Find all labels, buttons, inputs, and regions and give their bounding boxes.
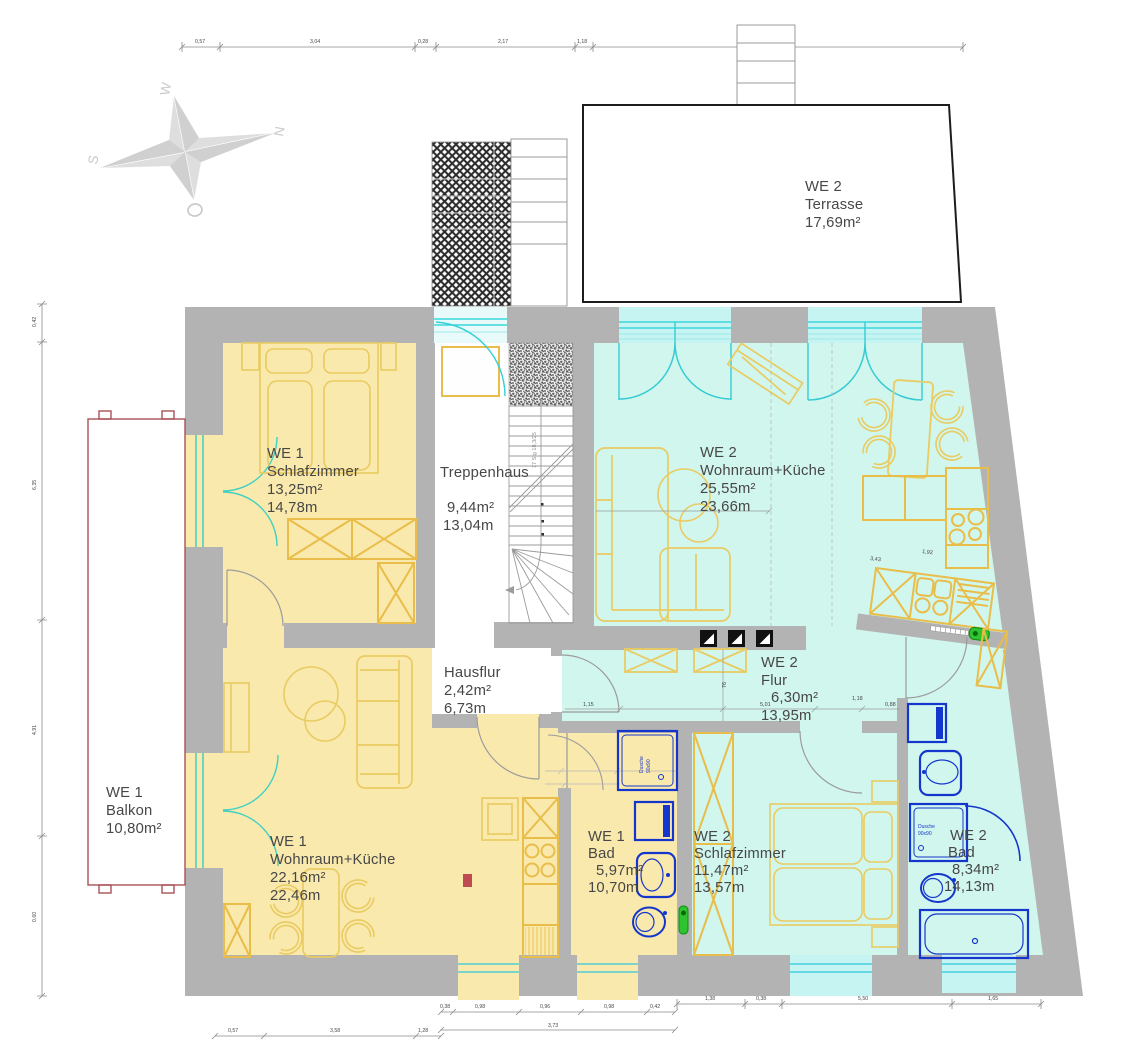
svg-text:3,58: 3,58 — [330, 1028, 340, 1034]
svg-text:2,17: 2,17 — [498, 39, 508, 45]
svg-text:6,73m: 6,73m — [444, 701, 486, 717]
svg-text:25,55m²: 25,55m² — [700, 481, 756, 497]
svg-text:22,46m: 22,46m — [270, 888, 321, 904]
svg-text:1,15: 1,15 — [583, 702, 594, 708]
svg-text:0,96: 0,96 — [540, 1004, 550, 1010]
svg-text:Flur: Flur — [761, 673, 787, 689]
svg-text:11,47m²: 11,47m² — [694, 863, 749, 879]
svg-text:0,28: 0,28 — [418, 39, 428, 45]
svg-text:Hausflur: Hausflur — [444, 665, 501, 681]
svg-text:WE 1: WE 1 — [270, 834, 307, 850]
svg-text:22,16m²: 22,16m² — [270, 870, 326, 886]
svg-text:Schlafzimmer: Schlafzimmer — [267, 464, 359, 480]
svg-text:0,57: 0,57 — [228, 1028, 238, 1034]
svg-text:0,98: 0,98 — [475, 1004, 485, 1010]
svg-text:Bad: Bad — [948, 845, 975, 861]
svg-text:3,04: 3,04 — [310, 39, 320, 45]
svg-text:WE 2: WE 2 — [950, 828, 987, 844]
svg-text:14,13m: 14,13m — [944, 879, 995, 895]
svg-text:10,70m: 10,70m — [588, 880, 639, 896]
svg-text:6,30m²: 6,30m² — [771, 690, 818, 706]
svg-text:0,88: 0,88 — [885, 702, 896, 708]
svg-text:WE 2: WE 2 — [694, 829, 731, 845]
svg-text:8,34m²: 8,34m² — [952, 862, 999, 878]
svg-text:17 Stg 18,3/25: 17 Stg 18,3/25 — [532, 432, 538, 468]
svg-text:0,42: 0,42 — [32, 317, 38, 327]
svg-text:Bad: Bad — [588, 846, 615, 862]
svg-text:90x90: 90x90 — [646, 759, 652, 773]
svg-text:3,73: 3,73 — [548, 1023, 558, 1029]
svg-text:WE 1: WE 1 — [267, 446, 304, 462]
svg-text:1,18: 1,18 — [852, 696, 863, 702]
svg-text:Schlafzimmer: Schlafzimmer — [694, 846, 786, 862]
svg-text:1,38: 1,38 — [705, 996, 715, 1002]
svg-text:0,57: 0,57 — [195, 39, 205, 45]
svg-text:Dusche: Dusche — [639, 756, 645, 773]
svg-text:Wohnraum+Küche: Wohnraum+Küche — [270, 852, 396, 868]
svg-text:76: 76 — [722, 682, 728, 688]
svg-text:13,57m: 13,57m — [694, 880, 745, 896]
svg-text:13,04m: 13,04m — [443, 518, 494, 534]
svg-text:6,35: 6,35 — [32, 480, 38, 490]
svg-text:14,78m: 14,78m — [267, 500, 318, 516]
svg-text:WE 1: WE 1 — [106, 785, 143, 801]
svg-text:Treppenhaus: Treppenhaus — [440, 465, 529, 481]
svg-text:13,25m²: 13,25m² — [267, 482, 323, 498]
svg-text:5,50: 5,50 — [858, 996, 868, 1002]
svg-text:2,42m²: 2,42m² — [444, 683, 491, 699]
svg-text:WE 1: WE 1 — [588, 829, 625, 845]
svg-text:23,66m: 23,66m — [700, 499, 751, 515]
svg-text:5,97m²: 5,97m² — [596, 863, 643, 879]
svg-text:1,18: 1,18 — [577, 39, 587, 45]
svg-text:Terrasse: Terrasse — [805, 197, 863, 213]
svg-text:0,98: 0,98 — [604, 1004, 614, 1010]
svg-text:1,65: 1,65 — [988, 996, 998, 1002]
svg-text:4,91: 4,91 — [32, 725, 38, 735]
svg-text:WE 2: WE 2 — [700, 445, 737, 461]
svg-text:Balkon: Balkon — [106, 803, 152, 819]
svg-text:WE 2: WE 2 — [805, 179, 842, 195]
svg-text:0,60: 0,60 — [32, 912, 38, 922]
svg-text:0,42: 0,42 — [650, 1004, 660, 1010]
svg-text:Wohnraum+Küche: Wohnraum+Küche — [700, 463, 826, 479]
svg-text:90x90: 90x90 — [918, 831, 932, 837]
svg-text:13,95m: 13,95m — [761, 708, 812, 724]
svg-text:0,38: 0,38 — [756, 996, 766, 1002]
svg-text:WE 2: WE 2 — [761, 655, 798, 671]
svg-text:17,69m²: 17,69m² — [805, 215, 861, 231]
svg-text:10,80m²: 10,80m² — [106, 821, 162, 837]
svg-text:Dusche: Dusche — [918, 824, 935, 830]
svg-text:9,44m²: 9,44m² — [447, 500, 494, 516]
svg-text:0,38: 0,38 — [440, 1004, 450, 1010]
svg-text:1,28: 1,28 — [418, 1028, 428, 1034]
